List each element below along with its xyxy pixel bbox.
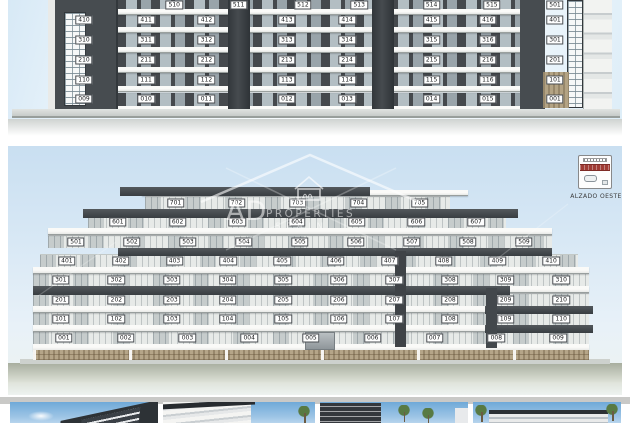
cloud bbox=[28, 411, 54, 421]
unit-label-411: 411 bbox=[137, 16, 154, 25]
unit-label-511: 511 bbox=[230, 1, 247, 10]
unit-label-313: 313 bbox=[278, 36, 295, 45]
unit-label-205: 205 bbox=[274, 295, 291, 304]
unit-label-416: 416 bbox=[479, 16, 496, 25]
unit-label-510: 510 bbox=[166, 1, 183, 10]
unit-label-210: 210 bbox=[552, 295, 569, 304]
unit-label-410: 410 bbox=[75, 16, 92, 25]
floor-window-band bbox=[118, 93, 520, 107]
unit-label-310: 310 bbox=[552, 276, 569, 285]
unit-label-306: 306 bbox=[330, 276, 347, 285]
unit-label-201: 201 bbox=[52, 295, 69, 304]
unit-label-103: 103 bbox=[163, 314, 180, 323]
unit-label-311: 311 bbox=[137, 36, 154, 45]
unit-label-202: 202 bbox=[108, 295, 125, 304]
unit-label-004: 004 bbox=[240, 334, 257, 343]
ground-band bbox=[8, 363, 622, 383]
unit-label-001: 001 bbox=[546, 95, 563, 104]
unit-label-315: 315 bbox=[423, 36, 440, 45]
unit-label-701: 701 bbox=[167, 199, 184, 208]
unit-label-502: 502 bbox=[123, 237, 140, 246]
unit-label-705: 705 bbox=[411, 199, 428, 208]
unit-label-404: 404 bbox=[220, 256, 237, 265]
key-door-icon bbox=[602, 180, 608, 185]
unit-label-405: 405 bbox=[273, 256, 290, 265]
floor-window-band bbox=[118, 33, 520, 47]
unit-label-604: 604 bbox=[288, 218, 305, 227]
unit-label-011: 011 bbox=[198, 95, 215, 104]
unit-label-111: 111 bbox=[137, 75, 154, 84]
palm-tree-icon bbox=[605, 404, 619, 421]
unit-label-605: 605 bbox=[348, 218, 365, 227]
unit-label-501: 501 bbox=[67, 237, 84, 246]
unit-label-409: 409 bbox=[489, 256, 506, 265]
balcony-slab bbox=[510, 286, 589, 293]
roof-slab bbox=[120, 187, 370, 196]
unit-label-703: 703 bbox=[289, 199, 306, 208]
unit-label-108: 108 bbox=[441, 314, 458, 323]
unit-label-606: 606 bbox=[408, 218, 425, 227]
unit-label-116: 116 bbox=[479, 75, 496, 84]
balcony-slab bbox=[112, 67, 526, 73]
unit-label-115: 115 bbox=[423, 75, 440, 84]
unit-label-206: 206 bbox=[330, 295, 347, 304]
unit-label-415: 415 bbox=[423, 16, 440, 25]
unit-label-507: 507 bbox=[403, 237, 420, 246]
unit-label-213: 213 bbox=[278, 55, 295, 64]
thumbnail-render-facade-closeup[interactable] bbox=[163, 402, 315, 423]
unit-label-407: 407 bbox=[381, 256, 398, 265]
unit-label-308: 308 bbox=[441, 276, 458, 285]
unit-label-109: 109 bbox=[497, 314, 514, 323]
unit-label-512: 512 bbox=[294, 1, 311, 10]
unit-label-107: 107 bbox=[386, 314, 403, 323]
unit-label-310: 310 bbox=[75, 36, 92, 45]
unit-label-301: 301 bbox=[52, 276, 69, 285]
unit-label-307: 307 bbox=[386, 276, 403, 285]
unit-label-406: 406 bbox=[327, 256, 344, 265]
unit-label-001: 001 bbox=[55, 334, 72, 343]
right-window-column bbox=[567, 0, 583, 108]
upper-elevation-panel: 5105115125135145155014114124134144154164… bbox=[8, 0, 622, 140]
unit-label-702: 702 bbox=[228, 199, 245, 208]
unit-label-305: 305 bbox=[274, 276, 291, 285]
unit-label-009: 009 bbox=[549, 334, 566, 343]
unit-label-212: 212 bbox=[198, 55, 215, 64]
unit-label-316: 316 bbox=[479, 36, 496, 45]
unit-label-607: 607 bbox=[467, 218, 484, 227]
unit-label-402: 402 bbox=[112, 256, 129, 265]
roof-slab bbox=[485, 325, 593, 334]
floor-window-band bbox=[118, 53, 520, 67]
unit-label-012: 012 bbox=[278, 95, 295, 104]
unit-label-009: 009 bbox=[75, 95, 92, 104]
unit-label-101: 101 bbox=[52, 314, 69, 323]
roof-slab bbox=[485, 306, 593, 315]
unit-label-504: 504 bbox=[235, 237, 252, 246]
unit-label-102: 102 bbox=[108, 314, 125, 323]
balcony-slab bbox=[112, 27, 526, 33]
elevation-key-icon bbox=[578, 155, 612, 189]
floor-window-band bbox=[118, 73, 520, 87]
unit-label-112: 112 bbox=[198, 75, 215, 84]
ground-fade bbox=[8, 382, 622, 395]
unit-label-101: 101 bbox=[546, 75, 563, 84]
right-stair-tower bbox=[520, 0, 545, 110]
unit-label-414: 414 bbox=[338, 16, 355, 25]
right-side-wing bbox=[583, 0, 612, 109]
unit-label-601: 601 bbox=[109, 218, 126, 227]
unit-label-215: 215 bbox=[423, 55, 440, 64]
unit-label-501: 501 bbox=[546, 1, 563, 10]
unit-label-210: 210 bbox=[75, 55, 92, 64]
thumbnail-strip bbox=[0, 395, 630, 423]
unit-label-413: 413 bbox=[278, 16, 295, 25]
unit-label-509: 509 bbox=[515, 237, 532, 246]
unit-label-010: 010 bbox=[137, 95, 154, 104]
unit-label-207: 207 bbox=[386, 295, 403, 304]
facade-divider bbox=[228, 0, 250, 109]
unit-label-015: 015 bbox=[479, 95, 496, 104]
unit-label-312: 312 bbox=[198, 36, 215, 45]
brochure-page: 5105115125135145155014114124134144154164… bbox=[0, 0, 630, 423]
thumbnail-render-wide-view[interactable] bbox=[473, 402, 621, 423]
palm-tree-icon bbox=[397, 405, 411, 422]
facade-divider bbox=[372, 0, 394, 109]
unit-label-008: 008 bbox=[488, 334, 505, 343]
unit-label-003: 003 bbox=[179, 334, 196, 343]
building-corner bbox=[320, 403, 381, 423]
white-building-sliver bbox=[455, 408, 468, 423]
unit-label-401: 401 bbox=[58, 256, 75, 265]
unit-label-410: 410 bbox=[542, 256, 559, 265]
unit-label-114: 114 bbox=[338, 75, 355, 84]
unit-label-209: 209 bbox=[497, 295, 514, 304]
unit-label-704: 704 bbox=[350, 199, 367, 208]
unit-label-403: 403 bbox=[166, 256, 183, 265]
unit-label-505: 505 bbox=[291, 237, 308, 246]
balcony-slab bbox=[33, 325, 485, 332]
unit-label-401: 401 bbox=[546, 16, 563, 25]
tower-corner-strip bbox=[48, 0, 55, 110]
unit-label-106: 106 bbox=[330, 314, 347, 323]
unit-label-314: 314 bbox=[338, 36, 355, 45]
palm-tree-icon bbox=[474, 405, 488, 422]
unit-label-204: 204 bbox=[219, 295, 236, 304]
unit-label-503: 503 bbox=[179, 237, 196, 246]
wide-building bbox=[489, 410, 607, 423]
unit-label-508: 508 bbox=[459, 237, 476, 246]
balcony-slab bbox=[112, 86, 526, 92]
unit-label-007: 007 bbox=[426, 334, 443, 343]
key-tick-row bbox=[583, 158, 607, 162]
unit-label-302: 302 bbox=[108, 276, 125, 285]
roof-slab bbox=[118, 248, 552, 257]
unit-label-216: 216 bbox=[479, 55, 496, 64]
roof-slab bbox=[83, 209, 518, 218]
unit-label-309: 309 bbox=[497, 276, 514, 285]
unit-label-203: 203 bbox=[163, 295, 180, 304]
unit-label-110: 110 bbox=[75, 75, 92, 84]
unit-label-113: 113 bbox=[278, 75, 295, 84]
unit-label-303: 303 bbox=[163, 276, 180, 285]
palm-tree-icon bbox=[421, 408, 435, 423]
unit-label-602: 602 bbox=[169, 218, 186, 227]
balcony-slab bbox=[112, 47, 526, 53]
unit-label-301: 301 bbox=[546, 36, 563, 45]
balcony-slab bbox=[48, 228, 552, 235]
west-elevation-panel: 7017027037047056016026036046056066075015… bbox=[8, 146, 622, 395]
stone-base-wall bbox=[33, 350, 589, 360]
unit-label-514: 514 bbox=[423, 1, 440, 10]
unit-label-002: 002 bbox=[117, 334, 134, 343]
unit-label-006: 006 bbox=[364, 334, 381, 343]
unit-label-013: 013 bbox=[338, 95, 355, 104]
floor-window-band bbox=[118, 14, 520, 28]
unit-label-506: 506 bbox=[347, 237, 364, 246]
unit-label-515: 515 bbox=[483, 1, 500, 10]
key-car-icon bbox=[584, 175, 597, 182]
unit-label-014: 014 bbox=[423, 95, 440, 104]
unit-label-005: 005 bbox=[302, 334, 319, 343]
unit-label-304: 304 bbox=[219, 276, 236, 285]
unit-label-408: 408 bbox=[435, 256, 452, 265]
palm-tree-icon bbox=[297, 406, 311, 423]
unit-label-208: 208 bbox=[441, 295, 458, 304]
unit-label-110: 110 bbox=[552, 314, 569, 323]
balcony-slab bbox=[33, 306, 485, 313]
key-highlight-band bbox=[580, 164, 610, 171]
unit-label-603: 603 bbox=[229, 218, 246, 227]
elevation-title: ALZADO OESTE bbox=[564, 193, 622, 200]
unit-label-513: 513 bbox=[350, 1, 367, 10]
thumbnail-render-corner-view[interactable] bbox=[320, 402, 468, 423]
ground-fade bbox=[8, 119, 622, 140]
thumbnail-render-aerial-view[interactable] bbox=[10, 402, 158, 423]
balcony-slab bbox=[33, 267, 589, 274]
roof-slab bbox=[33, 286, 510, 295]
unit-label-412: 412 bbox=[198, 16, 215, 25]
unit-label-104: 104 bbox=[219, 314, 236, 323]
unit-label-211: 211 bbox=[137, 55, 154, 64]
unit-label-201: 201 bbox=[546, 55, 563, 64]
unit-label-214: 214 bbox=[338, 55, 355, 64]
unit-label-105: 105 bbox=[274, 314, 291, 323]
ground-slab bbox=[12, 109, 620, 118]
